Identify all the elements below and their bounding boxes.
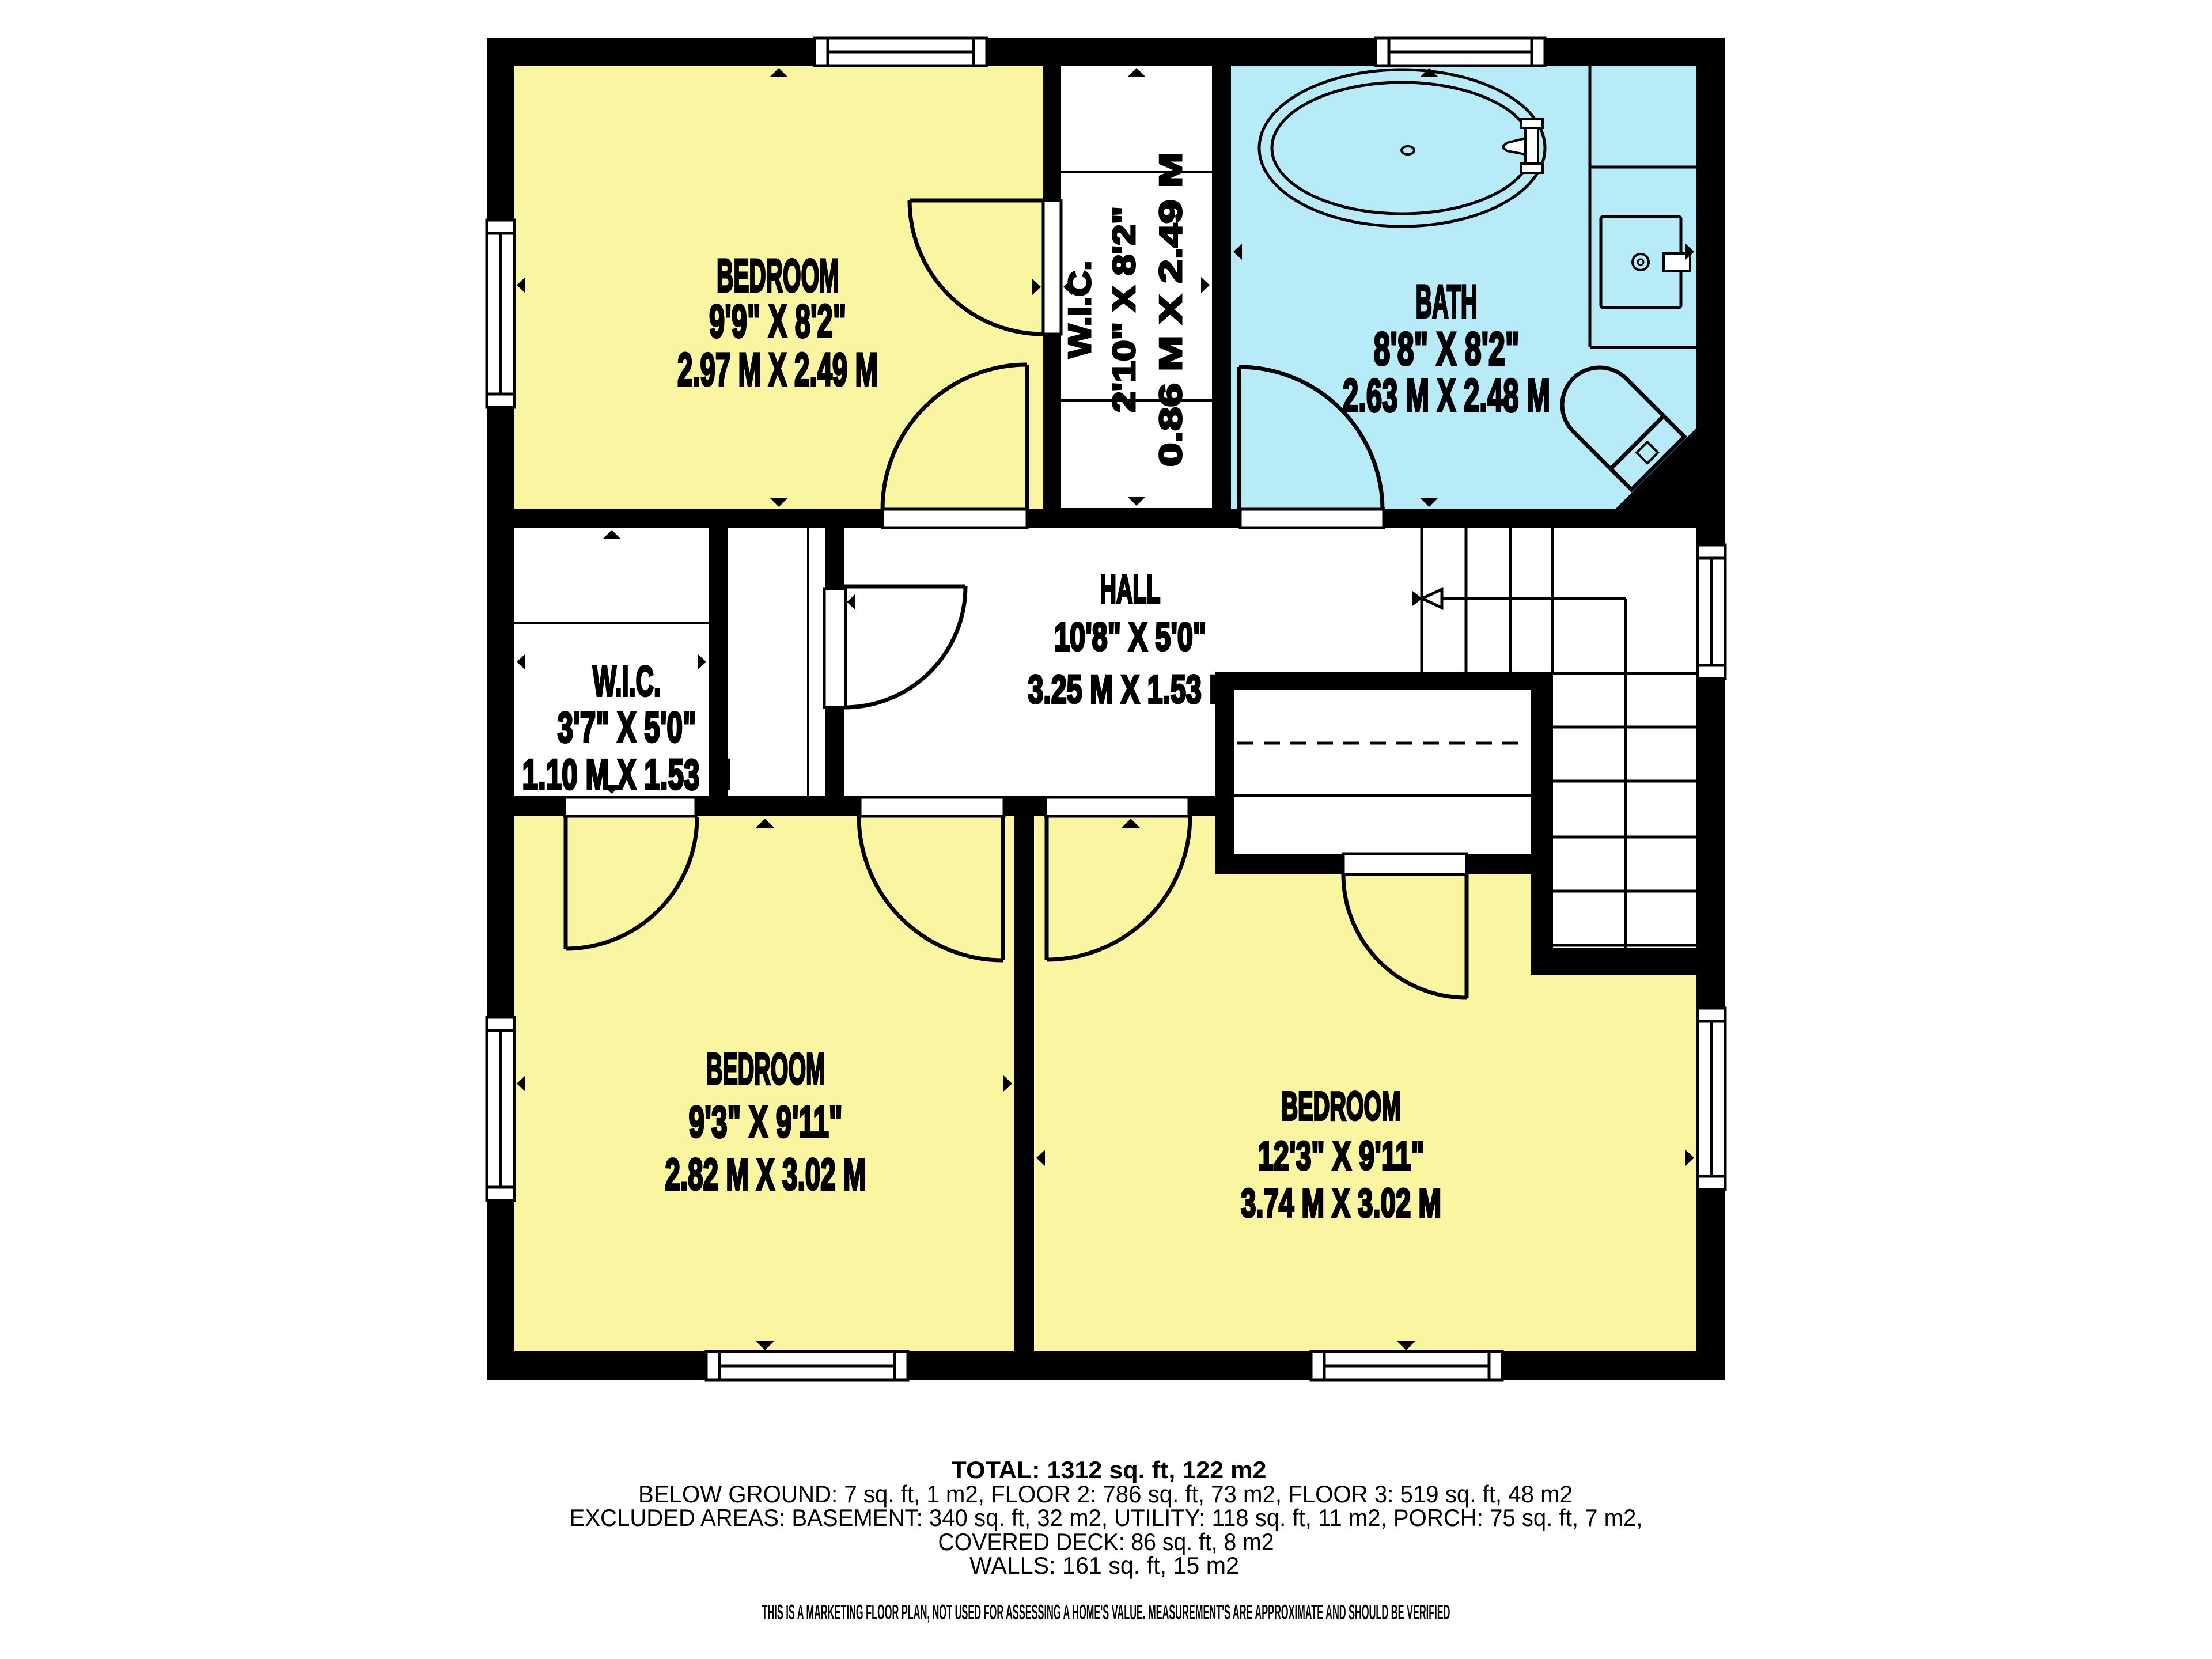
svg-text:BELOW GROUND: 7 sq. ft, 1 m2,: BELOW GROUND: 7 sq. ft, 1 m2, FLOOR 2: 7… xyxy=(638,1480,1573,1508)
svg-text:9'9" X 8'2": 9'9" X 8'2" xyxy=(709,296,846,347)
svg-text:EXCLUDED AREAS: BASEMENT: 340: EXCLUDED AREAS: BASEMENT: 340 sq. ft, 32… xyxy=(570,1504,1643,1531)
svg-text:2.97 M X 2.49 M: 2.97 M X 2.49 M xyxy=(677,344,878,396)
svg-text:BATH: BATH xyxy=(1416,276,1478,328)
svg-text:0.86 M X 2.49 M: 0.86 M X 2.49 M xyxy=(1153,152,1188,467)
svg-text:3.25 M X 1.53 M: 3.25 M X 1.53 M xyxy=(1028,667,1233,711)
svg-text:THIS IS A MARKETING FLOOR PLAN: THIS IS A MARKETING FLOOR PLAN, NOT USED… xyxy=(762,1600,1450,1624)
svg-text:10'8" X 5'0": 10'8" X 5'0" xyxy=(1054,615,1206,659)
svg-text:8'8" X 8'2": 8'8" X 8'2" xyxy=(1374,323,1520,375)
svg-text:W.I.C.: W.I.C. xyxy=(593,657,661,705)
svg-text:BEDROOM: BEDROOM xyxy=(706,1044,825,1094)
svg-text:12'3" X 9'11": 12'3" X 9'11" xyxy=(1258,1133,1425,1178)
svg-text:9'3" X 9'11": 9'3" X 9'11" xyxy=(689,1097,843,1147)
svg-text:HALL: HALL xyxy=(1100,567,1161,611)
svg-text:TOTAL: 1312 sq. ft, 122 m2: TOTAL: 1312 sq. ft, 122 m2 xyxy=(952,1456,1267,1483)
svg-text:2.63 M X 2.48 M: 2.63 M X 2.48 M xyxy=(1343,370,1550,422)
svg-text:W.I.C.: W.I.C. xyxy=(1062,261,1097,358)
svg-text:2.82 M X 3.02 M: 2.82 M X 3.02 M xyxy=(665,1150,866,1199)
svg-text:3'7" X 5'0": 3'7" X 5'0" xyxy=(558,703,696,751)
svg-text:BEDROOM: BEDROOM xyxy=(717,250,839,302)
svg-text:BEDROOM: BEDROOM xyxy=(1282,1084,1401,1128)
svg-text:1.10 M X 1.53 M: 1.10 M X 1.53 M xyxy=(522,751,732,798)
svg-text:COVERED DECK: 86 sq. ft, 8 m2: COVERED DECK: 86 sq. ft, 8 m2 xyxy=(938,1528,1274,1555)
svg-text:2'10" X 8'2": 2'10" X 8'2" xyxy=(1106,206,1142,412)
svg-text:WALLS: 161 sq. ft, 15 m2: WALLS: 161 sq. ft, 15 m2 xyxy=(969,1552,1239,1579)
svg-text:3.74 M X 3.02 M: 3.74 M X 3.02 M xyxy=(1241,1180,1441,1225)
